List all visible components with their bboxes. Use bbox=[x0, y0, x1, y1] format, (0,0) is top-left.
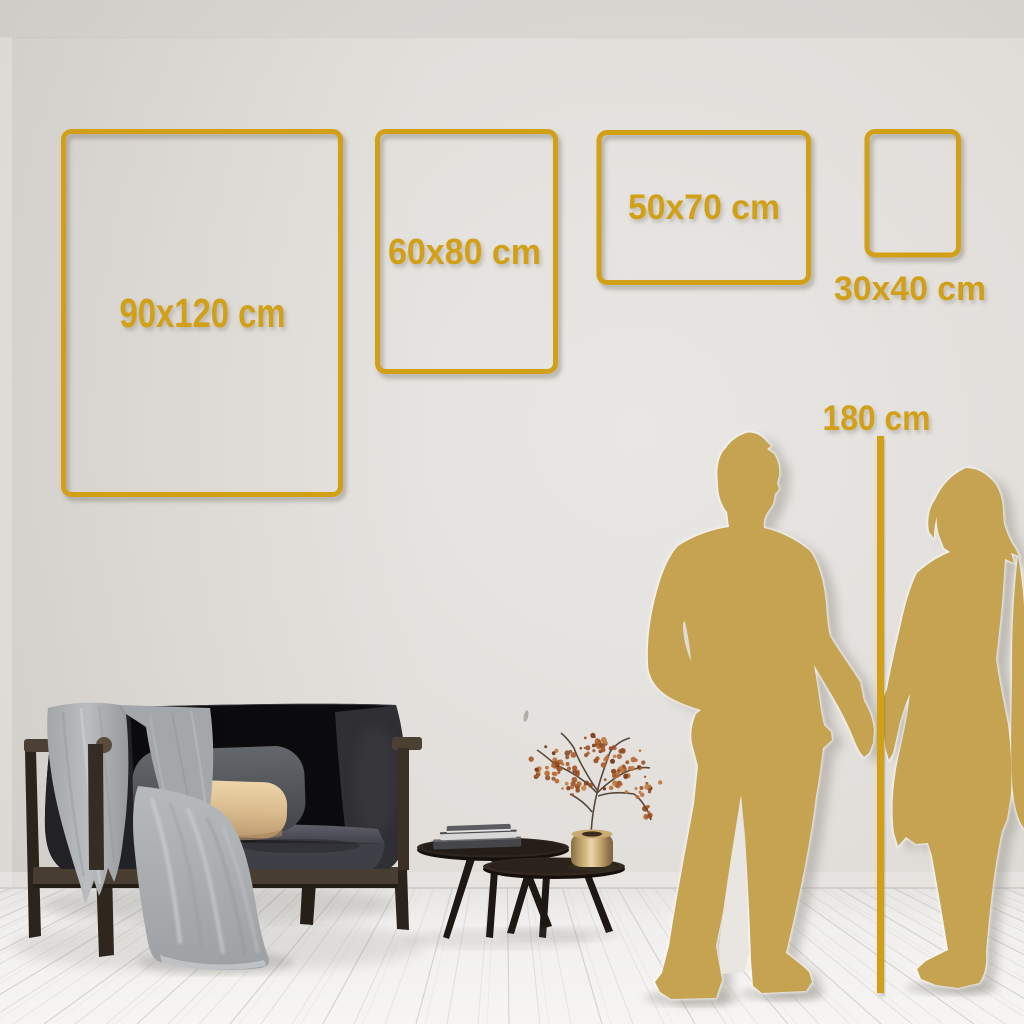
svg-text:60x80 cm: 60x80 cm bbox=[388, 231, 541, 272]
svg-text:30x40 cm: 30x40 cm bbox=[834, 270, 986, 308]
svg-text:90x120 cm: 90x120 cm bbox=[120, 290, 286, 336]
svg-text:50x70 cm: 50x70 cm bbox=[628, 188, 780, 227]
svg-text:180 cm: 180 cm bbox=[823, 399, 931, 438]
